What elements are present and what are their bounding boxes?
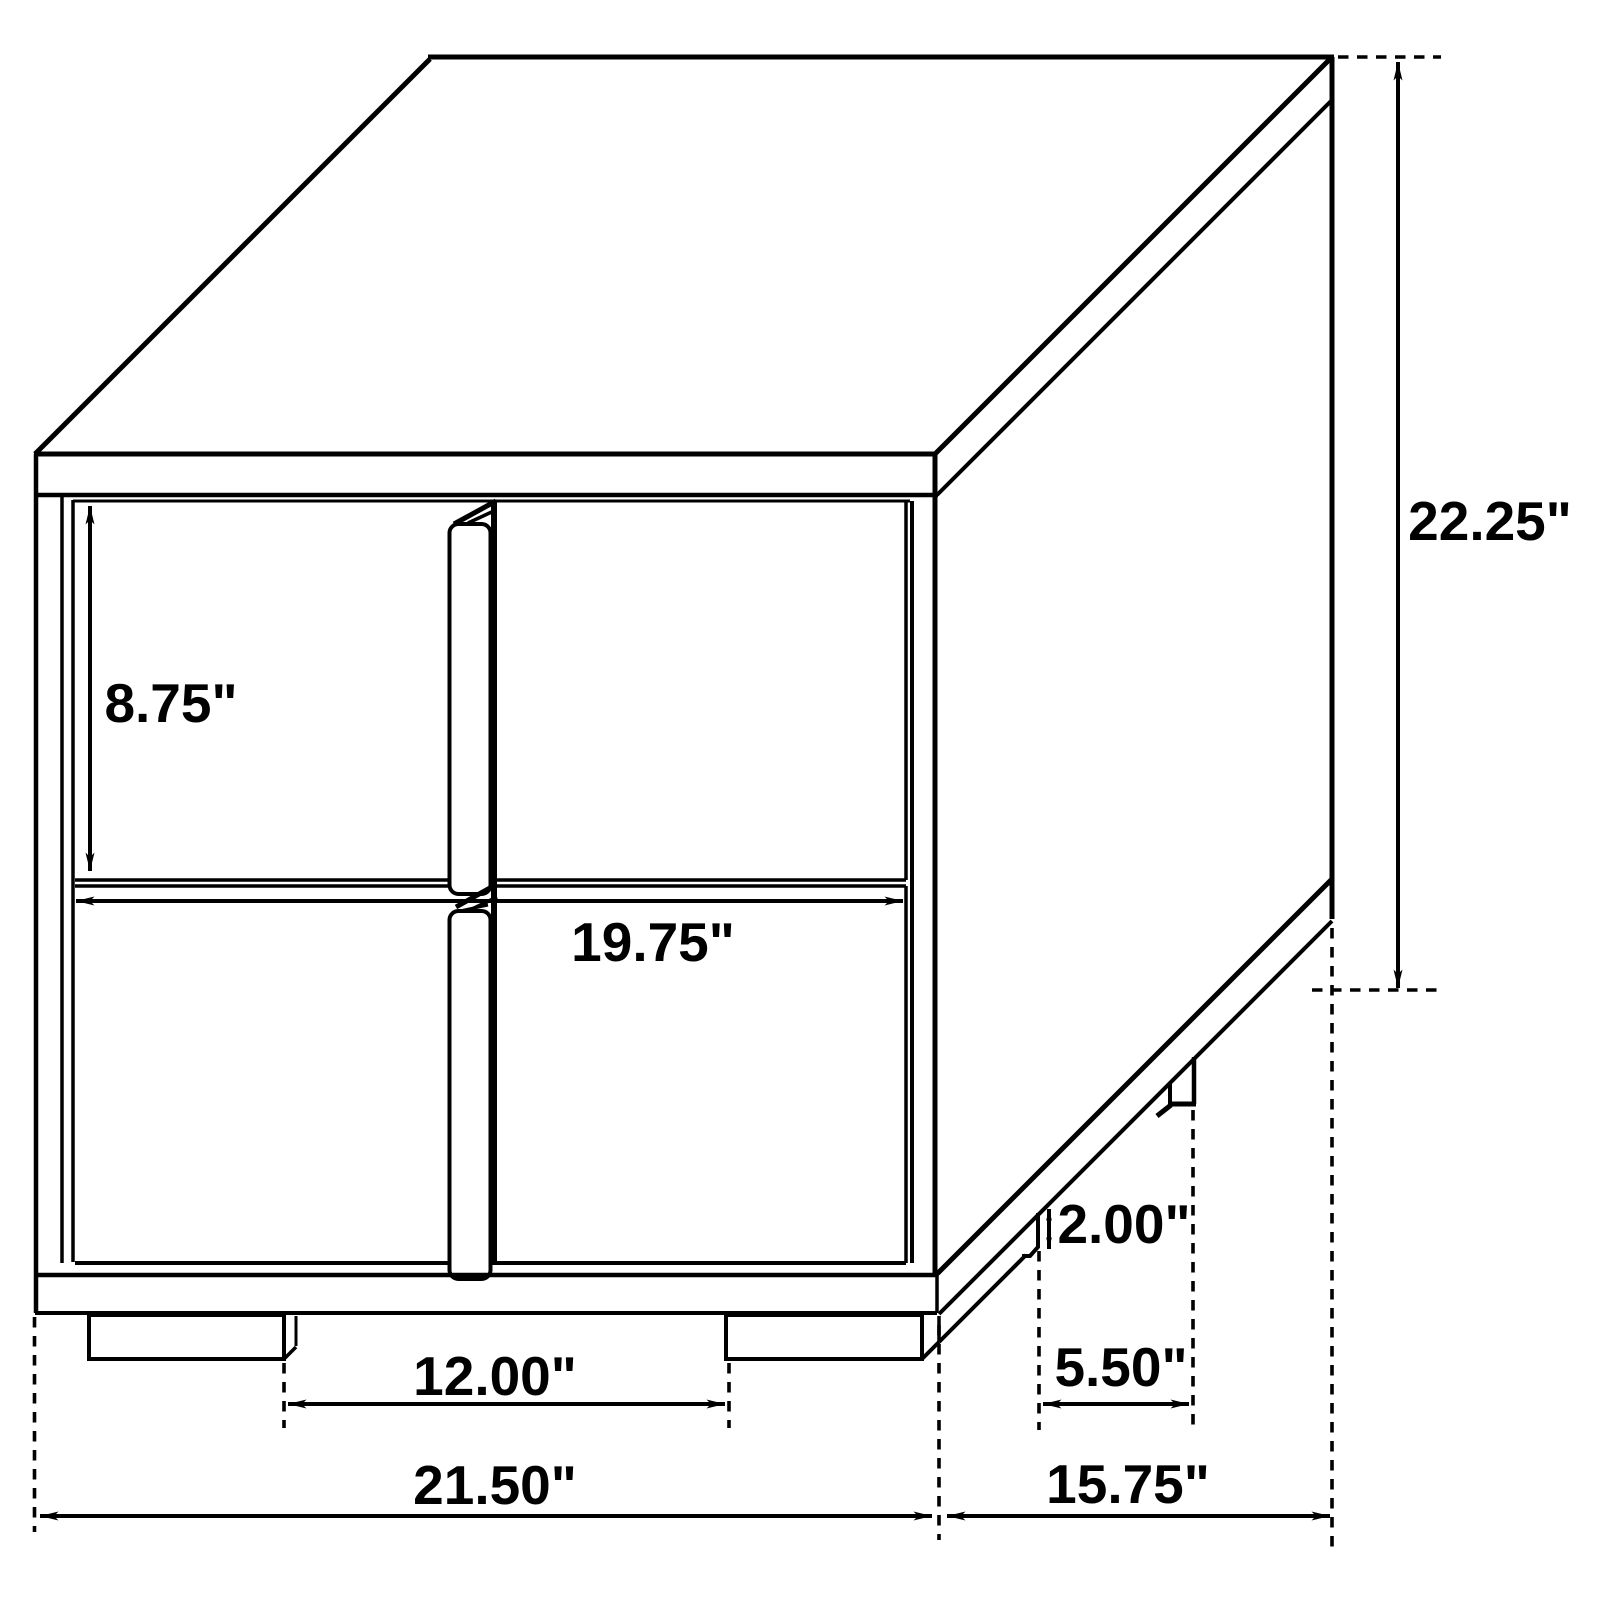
svg-text:5.50": 5.50" [1054,1336,1187,1398]
svg-text:15.75": 15.75" [1046,1453,1210,1515]
svg-text:21.50": 21.50" [413,1454,577,1516]
svg-text:19.75": 19.75" [571,911,735,973]
svg-text:2.00": 2.00" [1057,1193,1190,1255]
svg-text:8.75": 8.75" [104,672,237,734]
svg-text:22.25": 22.25" [1408,490,1572,552]
svg-text:12.00": 12.00" [413,1345,577,1407]
